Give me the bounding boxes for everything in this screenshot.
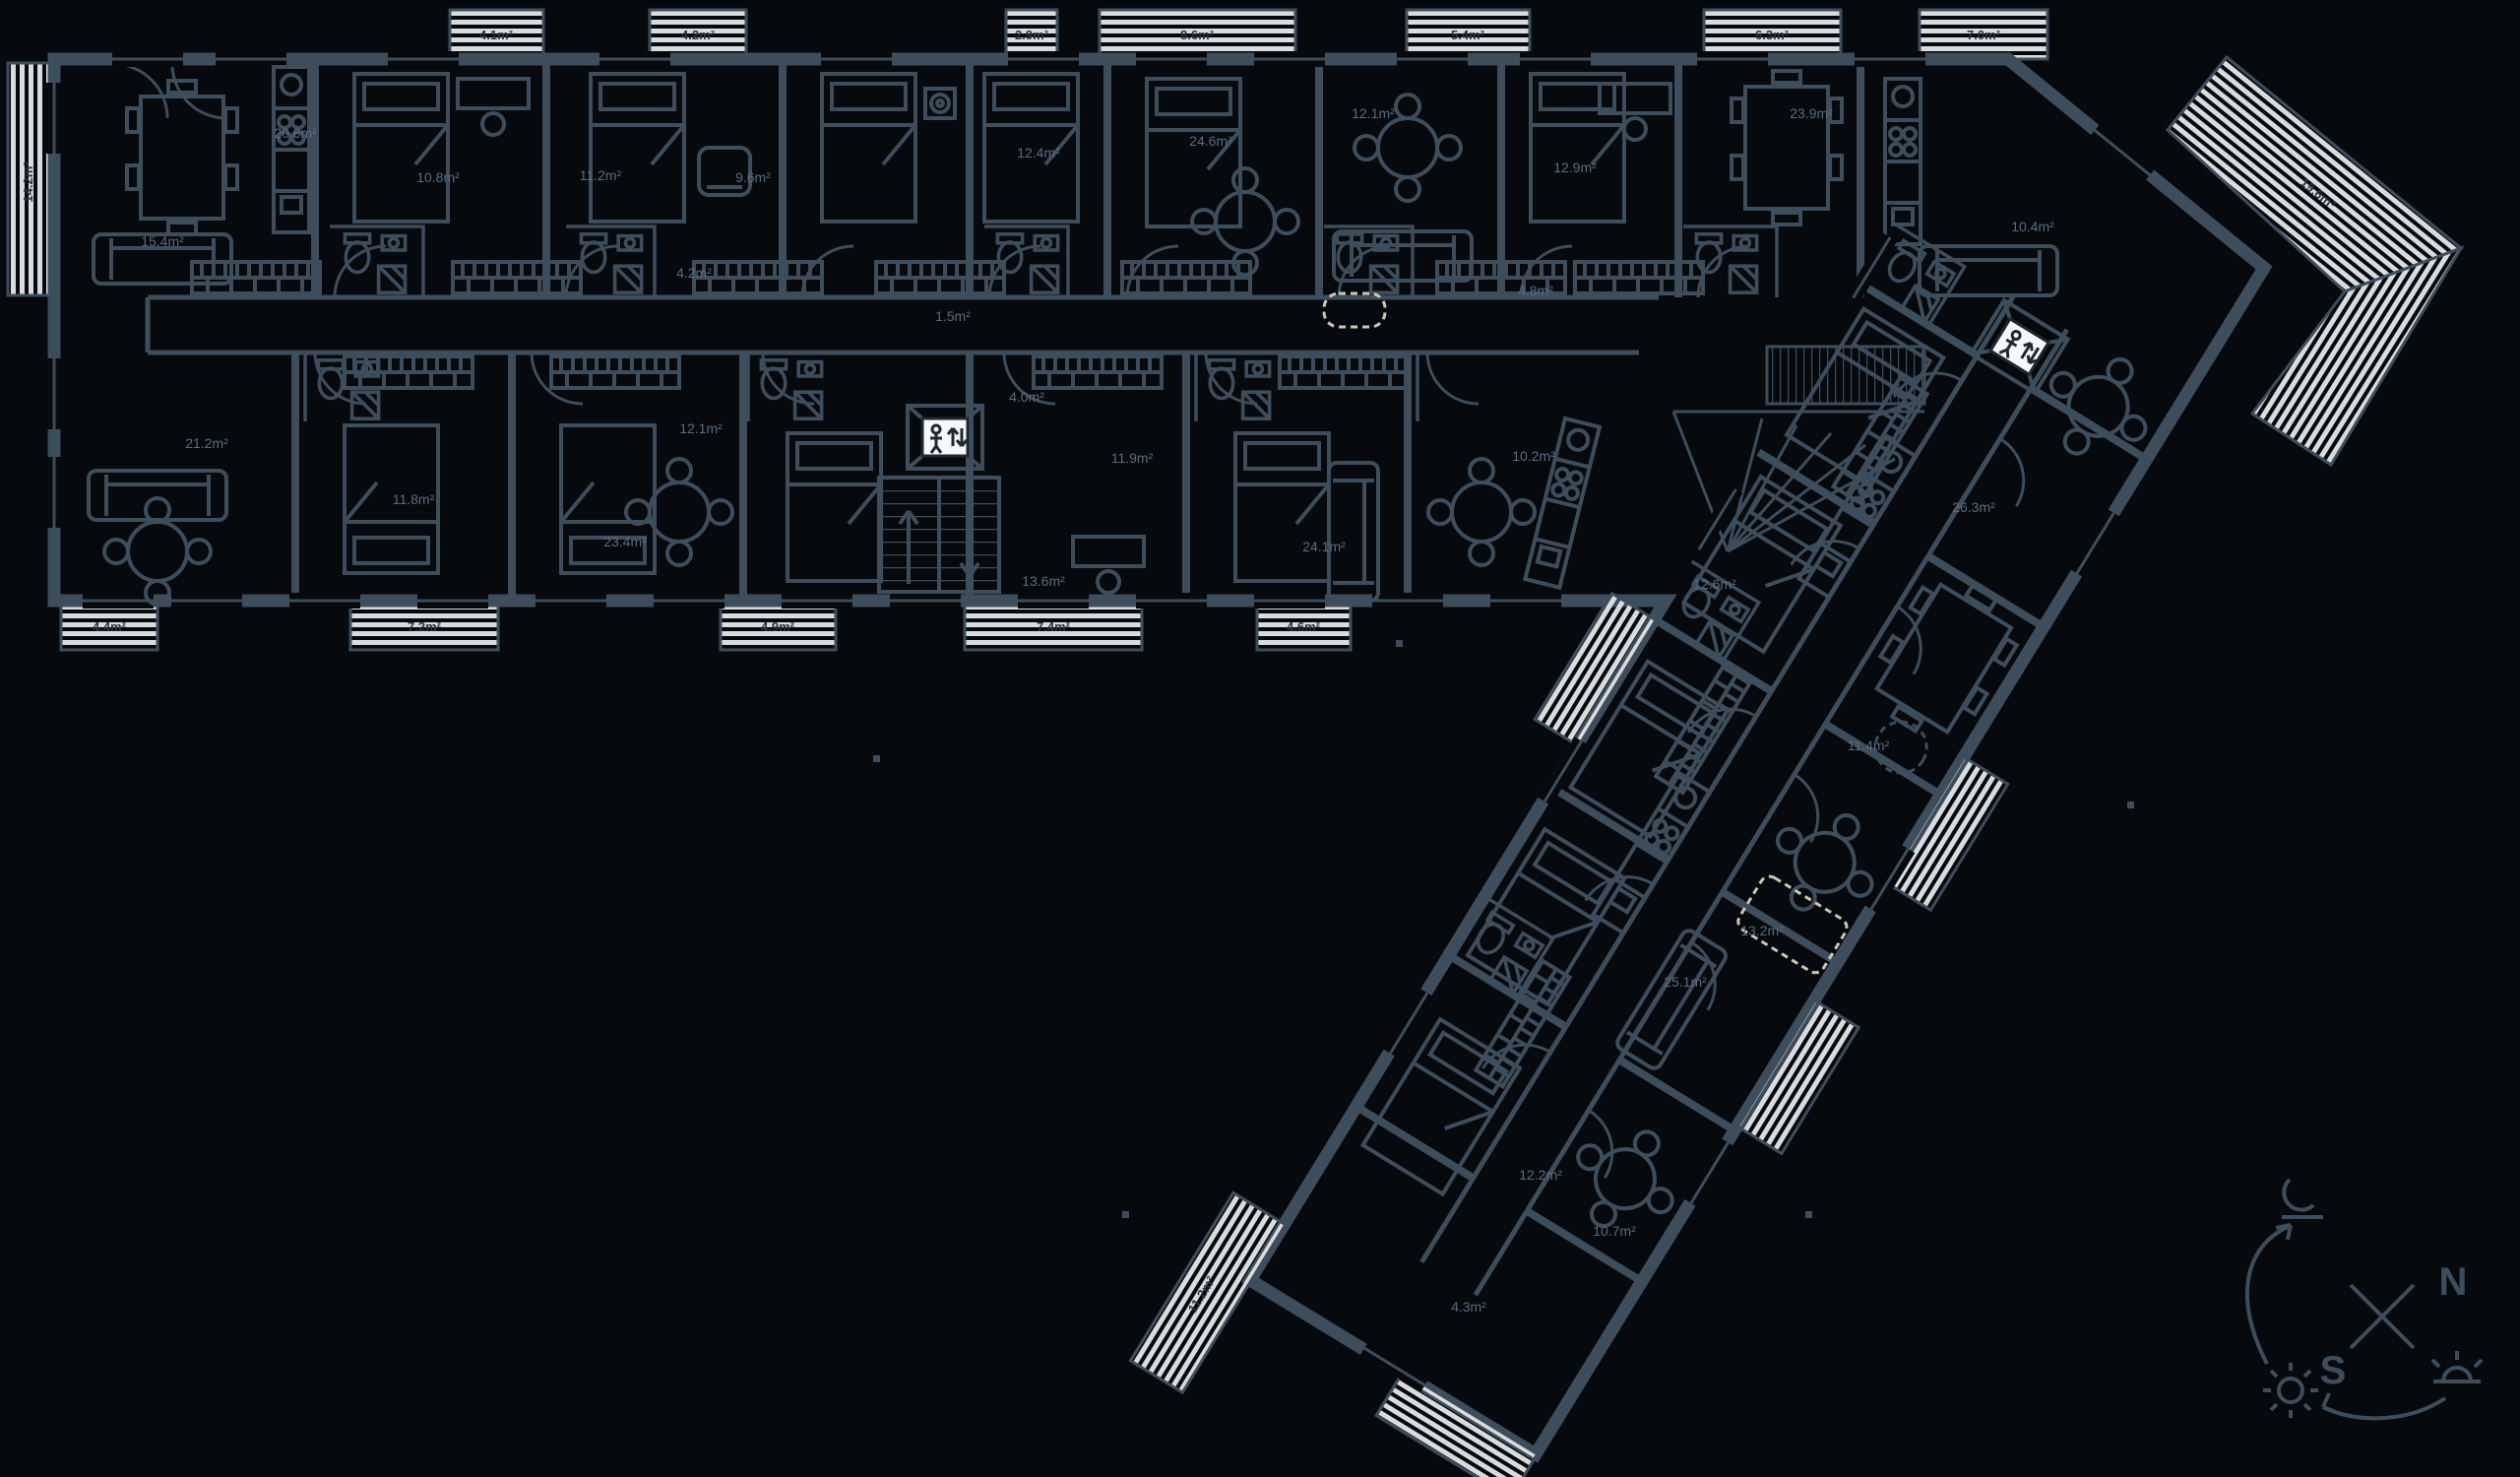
room-area-label: 24.1m² [1302, 539, 1346, 554]
room-area-label: 26.3m² [1952, 499, 1995, 515]
balcony: 7.2m² [350, 603, 498, 650]
balcony-area-label: 7.2m² [408, 619, 442, 634]
room-area-label: 15.4m² [141, 233, 184, 249]
balcony-area-label: 4.4m² [93, 619, 127, 634]
balcony-area-label: 7.0m² [1967, 28, 2001, 42]
room-area-label: 23.4m² [603, 534, 647, 549]
balcony-area-label: 8.6m² [1180, 28, 1215, 42]
room-area-label: 12.1m² [679, 420, 723, 436]
room-area-label: 4.3m² [1451, 1299, 1486, 1315]
balcony-area-label: 4.2m² [681, 28, 716, 42]
room-area-label: 12.1m² [1352, 105, 1395, 121]
floor-plan-drawing: 4.1m² 4.2m² 2.9m² 8.6m² 5.4m² 6.3m² 7.0m… [0, 0, 2520, 1477]
balcony: 4.1m² [450, 10, 543, 59]
balcony: 7.0m² [1920, 10, 2047, 59]
balcony-area-label: 7.4m² [1037, 619, 1071, 634]
room-area-label: 12.9m² [1553, 160, 1597, 175]
balcony: 4.6m² [1257, 603, 1351, 650]
balcony: 7.4m² [965, 603, 1142, 650]
room-area-label: 10.4m² [2011, 219, 2054, 234]
room-area-label: 1.5m² [935, 308, 971, 324]
balcony-area-label: 6.3m² [1755, 28, 1790, 42]
balcony: 4.4m² [61, 603, 157, 650]
floor-plan-page: 4.1m² 4.2m² 2.9m² 8.6m² 5.4m² 6.3m² 7.0m… [0, 0, 2520, 1477]
balcony-area-label: 5.4m² [1451, 28, 1485, 42]
room-area-label: 24.6m² [1189, 133, 1232, 149]
compass-north-label: N [2439, 1260, 2468, 1304]
room-area-label: 9.6m² [735, 169, 771, 185]
balcony-area-label: 14.2m² [21, 161, 35, 203]
room-area-label: 20.6m² [274, 125, 317, 141]
room-area-label: 11.8m² [393, 491, 435, 507]
room-area-label: 11.2m² [580, 167, 622, 183]
room-area-label: 10.8m² [416, 169, 460, 185]
balcony-area-label: 4.6m² [1287, 619, 1321, 634]
room-area-label: 21.2m² [185, 435, 228, 451]
room-area-label: 12.2m² [1519, 1167, 1562, 1183]
balcony: 4.9m² [721, 603, 836, 650]
room-area-label: 13.2m² [1740, 923, 1784, 938]
room-area-label: 13.6m² [1022, 573, 1065, 589]
compass-south-label: S [2320, 1349, 2347, 1392]
balconies-top: 4.1m² 4.2m² 2.9m² 8.6m² 5.4m² 6.3m² 7.0m… [450, 10, 2047, 59]
balcony-area-label: 2.9m² [1015, 28, 1049, 42]
room-area-label: 10.7m² [1593, 1223, 1636, 1239]
room-area-label: 11.9m² [1111, 450, 1154, 466]
staircase-icon [879, 478, 999, 592]
balcony-area-label: 4.9m² [761, 619, 795, 634]
room-area-label: 25.1m² [1664, 974, 1707, 990]
room-area-label: 4.8m² [1518, 283, 1553, 298]
room-area-label: 12.4m² [1017, 145, 1060, 161]
room-area-label: 4.0m² [1009, 389, 1044, 405]
room-area-label: 12.6m² [1693, 576, 1736, 592]
room-area-label: 4.2m² [676, 265, 712, 281]
room-area-label: 10.2m² [1512, 448, 1555, 464]
room-area-label: 23.9m² [1790, 105, 1833, 121]
balcony-area-label: 4.1m² [479, 28, 514, 42]
room-area-label: 11.4m² [1848, 738, 1890, 753]
